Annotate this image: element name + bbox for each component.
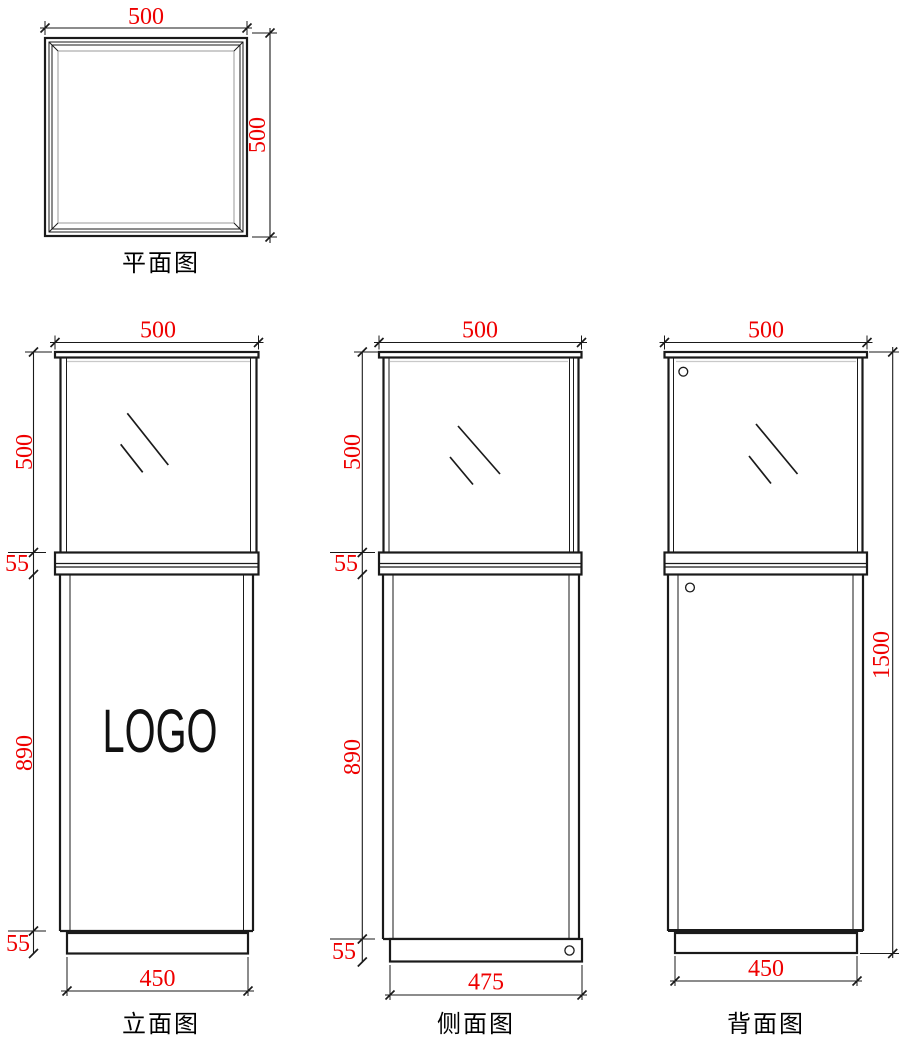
back-lower-lock-hole bbox=[686, 583, 695, 592]
plan-width-label: 500 bbox=[128, 4, 164, 30]
back-body-panel bbox=[668, 575, 863, 932]
side-base-height-label: 55 bbox=[332, 939, 356, 965]
plan-view: 500 500 平面图 bbox=[40, 4, 277, 277]
back-dim-bottom-width: 450 bbox=[670, 956, 862, 986]
back-base-width-label: 450 bbox=[748, 956, 784, 982]
front-counter-band bbox=[55, 553, 259, 575]
side-body-height-label: 890 bbox=[340, 739, 366, 775]
side-dim-left-column: 500 55 890 55 bbox=[330, 348, 378, 967]
side-glass-case bbox=[379, 352, 582, 553]
front-elevation: LOGO 500 500 55 890 55 bbox=[5, 318, 264, 1039]
back-total-height-label: 1500 bbox=[869, 631, 895, 679]
plan-dim-width: 500 bbox=[40, 4, 252, 35]
side-top-width-label: 500 bbox=[462, 318, 498, 344]
front-glass-reflection-marks bbox=[121, 413, 169, 472]
back-glass-reflection-marks bbox=[749, 424, 798, 484]
side-base-plinth bbox=[390, 939, 582, 962]
side-top-cap bbox=[379, 352, 582, 358]
front-title: 立面图 bbox=[122, 1011, 200, 1038]
back-title: 背面图 bbox=[727, 1011, 805, 1038]
side-dim-top-width: 500 bbox=[374, 318, 587, 350]
back-top-width-label: 500 bbox=[748, 318, 784, 344]
back-upper-lock-hole bbox=[679, 367, 688, 376]
front-top-cap bbox=[55, 352, 259, 358]
plan-depth-label: 500 bbox=[245, 117, 271, 153]
front-base-width-label: 450 bbox=[140, 966, 176, 992]
plan-frame-inner bbox=[58, 51, 234, 223]
side-base-width-label: 475 bbox=[468, 970, 504, 996]
back-dim-total-height: 1500 bbox=[860, 347, 899, 958]
back-dim-top-width: 500 bbox=[660, 318, 873, 350]
front-base-height-label: 55 bbox=[6, 931, 30, 957]
plan-frame-mid1 bbox=[49, 42, 243, 232]
side-dim-bottom-width: 475 bbox=[385, 965, 587, 1000]
side-elevation: 500 500 55 890 55 475 侧面图 bbox=[330, 318, 587, 1039]
front-glass-height-label: 500 bbox=[12, 434, 38, 470]
front-base-plinth bbox=[67, 933, 248, 954]
back-elevation: 500 1500 450 背面图 bbox=[660, 318, 900, 1039]
side-body-panel bbox=[383, 575, 579, 940]
front-glass-case bbox=[55, 352, 259, 553]
plan-dim-depth: 500 bbox=[245, 28, 277, 243]
back-top-cap bbox=[665, 352, 868, 358]
front-dim-left-column: 500 55 890 55 bbox=[5, 348, 52, 959]
front-dim-top-width: 500 bbox=[50, 318, 264, 350]
plan-frame-outer bbox=[45, 38, 247, 236]
front-dim-bottom-width: 450 bbox=[61, 957, 254, 996]
front-body-panel: LOGO bbox=[60, 575, 253, 932]
back-glass-case bbox=[665, 352, 868, 553]
plan-frame-mid2 bbox=[52, 45, 240, 229]
front-counter-height-label: 55 bbox=[5, 551, 29, 577]
plan-frame bbox=[45, 38, 247, 236]
side-glass-height-label: 500 bbox=[340, 434, 366, 470]
back-base-plinth bbox=[675, 933, 857, 953]
drawing-canvas: 500 500 平面图 bbox=[0, 0, 900, 1044]
side-glass-reflection-marks bbox=[450, 426, 500, 485]
front-logo-text: LOGO bbox=[103, 697, 218, 765]
back-counter-band bbox=[665, 553, 868, 575]
side-title: 侧面图 bbox=[437, 1011, 515, 1038]
front-top-width-label: 500 bbox=[140, 318, 176, 344]
plan-title: 平面图 bbox=[122, 250, 200, 277]
side-counter-band bbox=[379, 553, 582, 575]
showcase-technical-drawing: 500 500 平面图 bbox=[0, 0, 900, 1044]
front-body-height-label: 890 bbox=[12, 735, 38, 771]
side-foot-hole bbox=[565, 946, 574, 955]
side-counter-height-label: 55 bbox=[334, 551, 358, 577]
